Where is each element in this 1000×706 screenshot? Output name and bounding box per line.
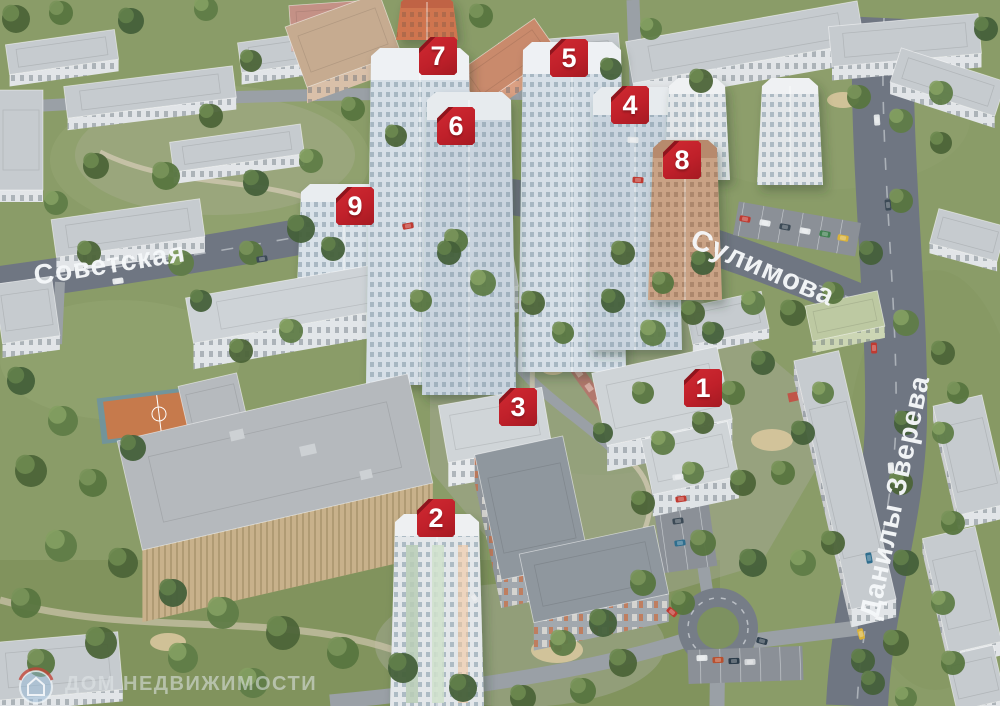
building-marker-7[interactable]: 7 <box>419 37 457 75</box>
building-marker-7-label: 7 <box>430 43 445 70</box>
building-marker-5[interactable]: 5 <box>550 39 588 77</box>
building-marker-8[interactable]: 8 <box>663 141 701 179</box>
building-marker-4-label: 4 <box>622 92 637 119</box>
building-marker-1[interactable]: 1 <box>684 369 722 407</box>
dom-nedvizhimosti-logo-icon <box>16 662 56 706</box>
building-marker-9[interactable]: 9 <box>336 187 374 225</box>
building-marker-6-label: 6 <box>448 113 463 140</box>
building-marker-6[interactable]: 6 <box>437 107 475 145</box>
building-marker-8-label: 8 <box>674 147 689 174</box>
building-marker-3[interactable]: 3 <box>499 388 537 426</box>
building-marker-2[interactable]: 2 <box>417 499 455 537</box>
building-marker-2-label: 2 <box>428 505 443 532</box>
masterplan: 1 2 3 4 5 6 7 8 9 Советская Сулимова Дан… <box>0 0 1000 706</box>
watermark: ДОМ НЕДВИЖИМОСТИ <box>16 662 317 706</box>
building-marker-3-label: 3 <box>510 394 525 421</box>
building-marker-5-label: 5 <box>561 45 576 72</box>
masterplan-render <box>0 0 1000 706</box>
building-marker-9-label: 9 <box>347 193 362 220</box>
watermark-text: ДОМ НЕДВИЖИМОСТИ <box>65 673 317 696</box>
building-marker-4[interactable]: 4 <box>611 86 649 124</box>
building-marker-1-label: 1 <box>695 375 710 402</box>
